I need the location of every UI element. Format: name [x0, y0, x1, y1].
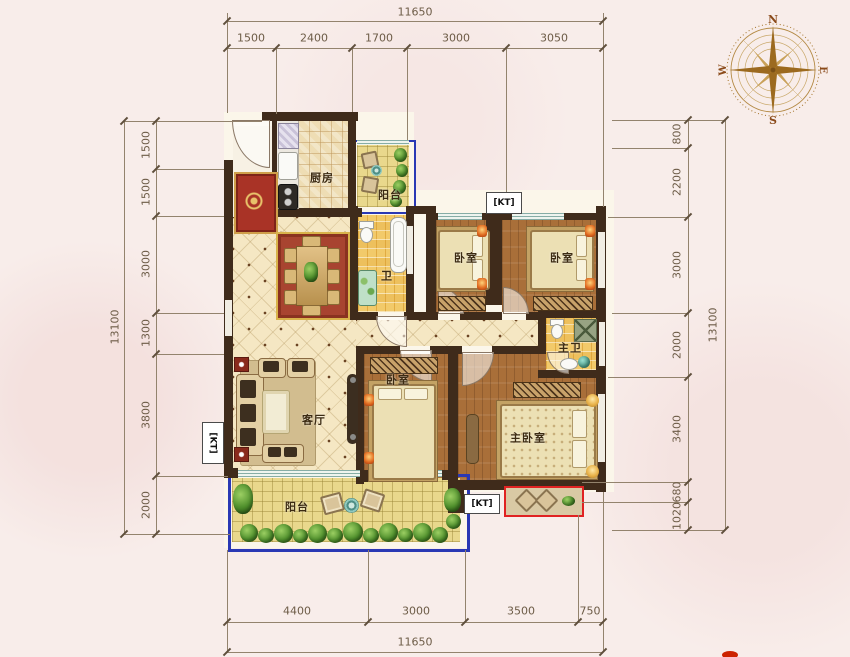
sofa-cushion: [240, 380, 256, 398]
wall-kitchen-right: [348, 112, 356, 216]
balcony-plant: [444, 488, 461, 512]
masterbath-sink: [560, 358, 578, 370]
dim-ext-line: [227, 13, 228, 113]
balcony-plant: [398, 528, 413, 542]
wall-hall-bottom-c: [492, 346, 538, 354]
dim-ext-line: [124, 534, 230, 535]
dim-ext-line: [156, 216, 224, 217]
dim-line: [124, 121, 125, 534]
kt-label-top-text: [KT]: [493, 198, 514, 208]
room-label-balcony-top: 阳台: [378, 190, 402, 201]
dim-ext-line: [612, 148, 688, 149]
dim-ext-line: [608, 217, 688, 218]
room-label-balcony-bottom: 阳台: [285, 502, 309, 513]
dining-chair: [284, 290, 297, 305]
wall-masterbath-bottom: [538, 370, 606, 378]
dim-ext-line: [603, 13, 604, 207]
wall-bath-left: [350, 206, 358, 320]
kt-label-left-text: [KT]: [208, 432, 218, 453]
dim-ext-line: [352, 48, 353, 112]
dim-ext-line: [612, 313, 688, 314]
balcony-plant: [446, 514, 461, 529]
logo-fragment: [722, 651, 738, 657]
shower-corner: [574, 319, 597, 342]
bedroom2-lamp: [585, 278, 595, 290]
bedroom3-pillow: [378, 388, 402, 400]
coffee-table: [262, 390, 290, 434]
compass-star: [729, 26, 817, 114]
tv-knob-top: [350, 377, 356, 383]
dim-seg: 680: [672, 482, 683, 503]
room-label-kitchen: 厨房: [310, 173, 334, 184]
compass-w: W: [718, 64, 729, 77]
dim-total-top: 11650: [398, 7, 433, 18]
master-pillow: [572, 410, 587, 438]
balcony-top-window: [357, 140, 409, 145]
window-bedroom1: [438, 213, 482, 220]
compass-s: S: [769, 114, 777, 125]
window-right-master: [598, 394, 605, 462]
floor-plan-canvas: [KT] [KT] [KT] 厨房 阳台 卫 卧室 卧室 主卫 客厅 卧室 主卧…: [0, 0, 850, 657]
wall-masterbath-top: [538, 310, 606, 318]
dim-seg: 800: [672, 124, 683, 145]
wall-bedroom1-left: [426, 206, 436, 318]
master-lamp: [586, 465, 599, 478]
balcony-plant: [413, 523, 432, 542]
bath-aquarium: [358, 270, 377, 306]
balcony-plant: [379, 523, 398, 542]
dim-ext-line: [612, 120, 725, 121]
sofa-cushion: [240, 428, 256, 446]
room-label-bath: 卫: [381, 271, 393, 282]
bedroom2-pillow: [576, 235, 587, 257]
balcony-plant: [293, 529, 308, 543]
dim-ext-line: [156, 169, 224, 170]
balcony-plant: [233, 484, 253, 514]
stove: [278, 184, 298, 210]
toilet-bath-bowl: [360, 227, 373, 243]
window-left-outer: [225, 300, 232, 336]
dim-total-left: 13100: [110, 310, 121, 345]
room-label-master-bedroom: 主卧室: [510, 433, 546, 444]
dining-chair: [327, 290, 340, 305]
speaker-top: [234, 357, 249, 372]
wall-bedroom3-master-divider: [448, 354, 458, 484]
kt-label-bottom: [KT]: [464, 494, 500, 514]
bedroom1-wardrobe: [438, 296, 486, 311]
dim-ext-line: [276, 48, 277, 114]
wall-hall-top-c: [486, 312, 502, 320]
room-label-bedroom3: 卧室: [386, 375, 410, 386]
toilet-masterbath-bowl: [551, 324, 563, 339]
dim-ext-line: [608, 377, 688, 378]
room-label-living: 客厅: [302, 415, 326, 426]
balcony-plant: [363, 528, 379, 543]
dim-line: [227, 21, 603, 22]
dim-tick: [599, 648, 607, 656]
balcony-plant: [432, 527, 448, 543]
balcony-plant: [258, 528, 274, 543]
dim-seg: 1500: [141, 178, 152, 206]
dim-seg: 3000: [141, 250, 152, 278]
sofa-cushion: [240, 404, 256, 422]
dim-line: [227, 622, 603, 623]
dim-seg: 3000: [402, 606, 430, 617]
dim-ext-line: [368, 550, 369, 622]
balcony-top-plant: [394, 148, 407, 162]
dim-seg: 1500: [141, 131, 152, 159]
masterbath-plant: [578, 356, 590, 368]
dim-seg: 2400: [300, 33, 328, 44]
compass-rose: N S E W: [718, 15, 828, 125]
bench-cushion: [284, 447, 297, 457]
bathtub-inner: [393, 221, 404, 267]
kitchen-floor: [298, 121, 348, 209]
bedroom3-pillow: [404, 388, 428, 400]
window-right-bedroom2: [598, 232, 605, 288]
ac-plant: [562, 496, 575, 506]
dining-chair: [284, 269, 297, 284]
dim-seg: 3800: [141, 401, 152, 429]
entry-rug-medallion: [244, 192, 264, 210]
dim-ext-line: [465, 550, 466, 622]
bedroom3-wardrobe: [370, 357, 438, 374]
dim-ext-line: [156, 354, 224, 355]
dim-seg: 3050: [540, 33, 568, 44]
armchair-cushion: [263, 361, 279, 372]
dim-total-bottom: 11650: [398, 637, 433, 648]
bedroom3-lamp: [364, 452, 374, 464]
wall-balcony-top-right: [442, 470, 456, 480]
dim-seg: 2000: [141, 491, 152, 519]
dining-chair: [327, 269, 340, 284]
speaker-bottom: [234, 447, 249, 462]
dim-seg: 3500: [507, 606, 535, 617]
bench-cushion: [268, 447, 281, 457]
dim-ext-line: [506, 48, 507, 192]
kt-label-bottom-text: [KT]: [471, 499, 492, 509]
bedroom1-lamp: [477, 278, 487, 290]
window-living-balcony-a: [238, 470, 360, 477]
dim-seg: 1020: [672, 502, 683, 530]
dim-ext-line: [407, 48, 408, 140]
wall-bath-bottom-a: [348, 312, 378, 320]
kitchen-sink: [278, 152, 298, 180]
wall-masterbath-left: [538, 310, 546, 354]
window-bedroom2: [512, 213, 564, 220]
dim-line: [227, 48, 603, 49]
bedroom3-lamp: [364, 394, 374, 406]
dim-ext-line: [612, 530, 725, 531]
wall-hall-top-a: [426, 312, 438, 320]
compass-e: E: [817, 66, 828, 74]
master-lamp: [586, 394, 599, 407]
wall-hall-bottom-b: [430, 346, 462, 354]
compass-n: N: [768, 15, 778, 26]
kt-label-top: [KT]: [486, 192, 522, 214]
dim-seg: 4400: [283, 606, 311, 617]
dim-ext-line: [156, 476, 228, 477]
dim-line: [227, 652, 603, 653]
balcony-plant: [308, 524, 327, 543]
balcony-plant: [274, 524, 293, 543]
bedroom1-lamp: [477, 225, 487, 237]
dim-ext-line: [227, 550, 228, 652]
master-dresser: [466, 414, 479, 464]
dim-tick: [721, 526, 729, 534]
armchair-cushion: [292, 361, 308, 372]
room-label-bedroom2: 卧室: [550, 253, 574, 264]
dining-centerpiece-plant: [304, 262, 318, 282]
window-right-masterbath: [599, 322, 605, 366]
dim-line: [688, 120, 689, 530]
kt-label-left: [KT]: [202, 422, 224, 464]
dim-line: [725, 120, 726, 530]
window-bath-right: [407, 226, 413, 274]
room-label-master-bath: 主卫: [558, 343, 582, 354]
dining-chair: [284, 248, 297, 263]
dim-seg: 3400: [672, 415, 683, 443]
balcony-plant: [343, 522, 363, 542]
dim-ext-line: [156, 313, 224, 314]
balcony-table: [344, 498, 359, 513]
dim-total-right: 13100: [708, 308, 719, 343]
dim-seg: 1500: [237, 33, 265, 44]
bedroom2-lamp: [585, 225, 595, 237]
dim-seg: 2200: [672, 168, 683, 196]
dim-seg: 3000: [672, 251, 683, 279]
balcony-top-plant: [396, 164, 408, 177]
bedroom2-wardrobe: [533, 296, 593, 311]
dim-ext-line: [124, 121, 262, 122]
balcony-top-table: [371, 165, 382, 176]
balcony-plant: [240, 524, 258, 542]
master-pillow: [572, 440, 587, 468]
tv-knob-bottom: [350, 434, 356, 440]
dining-chair: [302, 305, 321, 316]
dining-chair: [327, 248, 340, 263]
dim-seg: 750: [580, 606, 601, 617]
dim-ext-line: [603, 492, 604, 652]
dim-seg: 1700: [365, 33, 393, 44]
balcony-plant: [327, 528, 343, 543]
dim-seg: 2000: [672, 331, 683, 359]
balcony-top-stool: [361, 176, 380, 195]
room-label-bedroom1: 卧室: [454, 253, 478, 264]
dim-seg: 1300: [141, 319, 152, 347]
dining-chair: [302, 236, 321, 247]
master-wardrobe: [513, 382, 581, 398]
dim-seg: 3000: [442, 33, 470, 44]
fridge: [278, 123, 299, 149]
